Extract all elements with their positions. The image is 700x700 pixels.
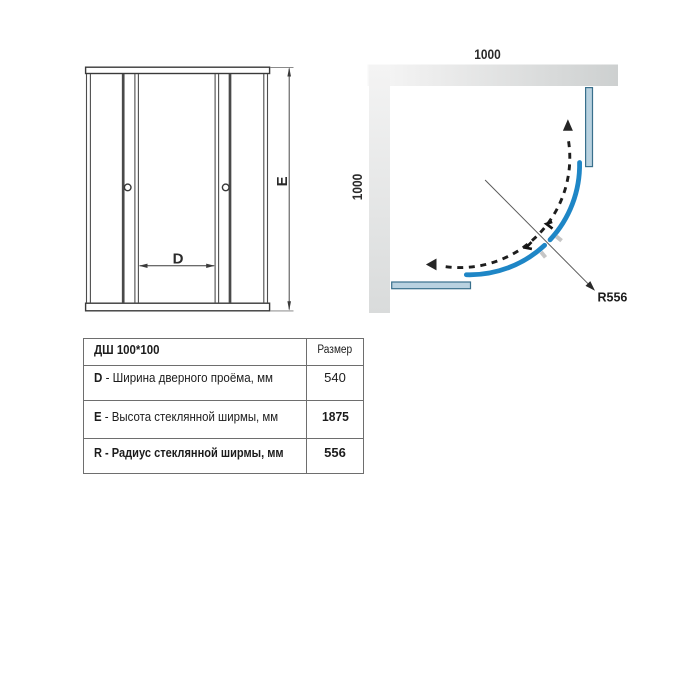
svg-text:R556: R556: [598, 291, 628, 305]
svg-text:1000: 1000: [474, 46, 501, 62]
svg-text:E: E: [274, 176, 291, 186]
svg-text:1000: 1000: [349, 174, 365, 201]
svg-text:D: D: [173, 251, 184, 268]
